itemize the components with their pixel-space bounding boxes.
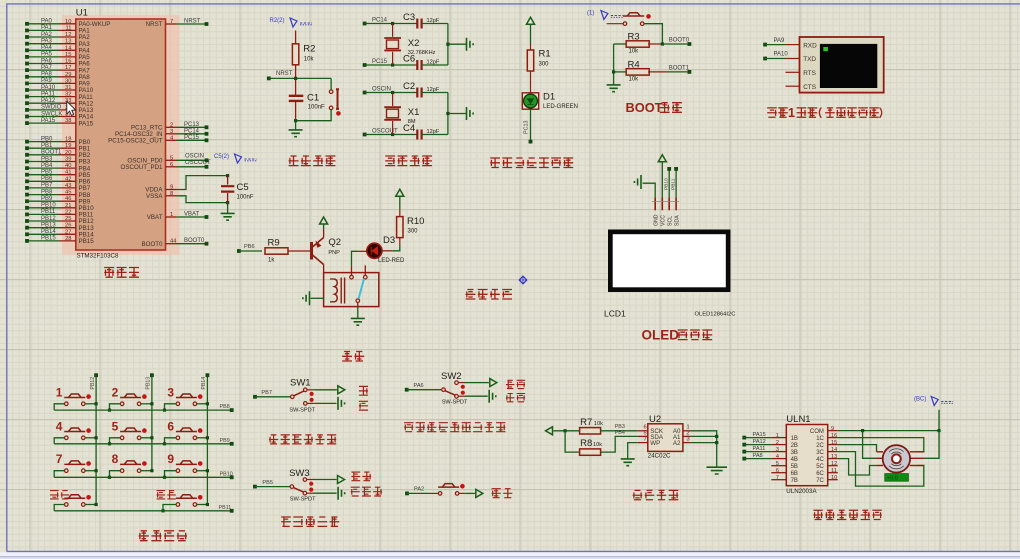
svg-text:39: 39 bbox=[65, 157, 71, 163]
svg-text:8: 8 bbox=[112, 452, 119, 466]
svg-text:1: 1 bbox=[788, 106, 795, 120]
svg-text:7C: 7C bbox=[816, 478, 824, 484]
svg-text:PA0: PA0 bbox=[41, 19, 53, 25]
svg-text:BOOT0: BOOT0 bbox=[669, 38, 690, 44]
svg-text:PA12: PA12 bbox=[753, 439, 766, 445]
svg-text:PB3: PB3 bbox=[41, 156, 53, 162]
svg-text:A2: A2 bbox=[673, 440, 681, 447]
svg-text:10k: 10k bbox=[629, 77, 640, 83]
svg-text:R4: R4 bbox=[628, 60, 640, 71]
svg-text:20: 20 bbox=[65, 150, 71, 156]
svg-text:10: 10 bbox=[65, 19, 71, 25]
svg-text:PB12: PB12 bbox=[41, 216, 56, 222]
svg-text:WP: WP bbox=[650, 440, 660, 447]
svg-text:PA2: PA2 bbox=[414, 487, 424, 493]
svg-text:40: 40 bbox=[65, 163, 71, 169]
svg-text:C2: C2 bbox=[403, 81, 415, 92]
svg-text:43: 43 bbox=[65, 183, 71, 189]
svg-text:VCC: VCC bbox=[661, 215, 667, 226]
svg-text:D3: D3 bbox=[383, 235, 395, 246]
svg-text:17: 17 bbox=[65, 65, 71, 71]
svg-text:46: 46 bbox=[65, 196, 71, 202]
svg-text:TXD: TXD bbox=[803, 56, 816, 63]
svg-text:+0.0: +0.0 bbox=[887, 476, 898, 482]
svg-text:PA4: PA4 bbox=[41, 45, 53, 51]
svg-text:7: 7 bbox=[776, 475, 779, 481]
svg-text:14: 14 bbox=[831, 447, 837, 453]
svg-text:PA6: PA6 bbox=[414, 383, 424, 389]
svg-text:SW1: SW1 bbox=[290, 377, 311, 388]
svg-text:PB10: PB10 bbox=[220, 471, 233, 477]
svg-text:PA8: PA8 bbox=[41, 72, 53, 78]
svg-text:3B: 3B bbox=[791, 450, 798, 456]
svg-text:1k: 1k bbox=[268, 258, 275, 264]
svg-text:19: 19 bbox=[65, 143, 71, 149]
svg-text:PA15: PA15 bbox=[41, 118, 56, 124]
svg-text:PB9: PB9 bbox=[41, 196, 53, 202]
svg-text:PA6: PA6 bbox=[41, 58, 53, 64]
svg-text:BOOT: BOOT bbox=[626, 100, 663, 115]
svg-text:PA1: PA1 bbox=[41, 25, 53, 31]
svg-text:VBAT: VBAT bbox=[147, 214, 163, 221]
svg-text:PB9: PB9 bbox=[220, 438, 230, 444]
svg-text:10k: 10k bbox=[304, 57, 315, 63]
svg-text:U2: U2 bbox=[649, 414, 661, 425]
svg-text:PA9: PA9 bbox=[774, 38, 786, 44]
svg-text:X1: X1 bbox=[408, 107, 420, 118]
svg-text:RXD: RXD bbox=[803, 42, 817, 49]
svg-text:PB13: PB13 bbox=[41, 223, 56, 229]
svg-text:(1): (1) bbox=[587, 11, 594, 17]
svg-text:28: 28 bbox=[65, 236, 71, 242]
svg-text:26: 26 bbox=[65, 223, 71, 229]
svg-text:3: 3 bbox=[687, 437, 690, 443]
svg-text:12: 12 bbox=[831, 461, 837, 467]
svg-text:X2: X2 bbox=[408, 38, 420, 49]
svg-text:PA11: PA11 bbox=[41, 91, 55, 97]
svg-text:12pF: 12pF bbox=[427, 87, 440, 93]
svg-text:BOOT1: BOOT1 bbox=[669, 65, 690, 71]
svg-text:SW-SPDT: SW-SPDT bbox=[442, 399, 468, 405]
svg-text:PA3: PA3 bbox=[41, 39, 53, 45]
svg-text:PB8: PB8 bbox=[220, 404, 230, 410]
svg-text:PB13: PB13 bbox=[146, 377, 152, 390]
svg-text:10k: 10k bbox=[629, 49, 640, 55]
svg-text:PB6: PB6 bbox=[41, 176, 53, 182]
svg-text:4C: 4C bbox=[816, 457, 824, 463]
svg-text:OSCIN: OSCIN bbox=[185, 154, 204, 160]
svg-text:OSCOUT: OSCOUT bbox=[185, 160, 211, 166]
svg-text:SWCLK: SWCLK bbox=[41, 111, 62, 117]
svg-text:PB1: PB1 bbox=[41, 143, 53, 149]
svg-text:SW-SPDT: SW-SPDT bbox=[290, 496, 316, 502]
svg-text:4: 4 bbox=[776, 454, 779, 460]
svg-text:45: 45 bbox=[65, 190, 71, 196]
svg-text:6: 6 bbox=[776, 468, 779, 474]
svg-text:10: 10 bbox=[831, 475, 837, 481]
svg-text:PA2: PA2 bbox=[41, 32, 53, 38]
svg-text:PC15: PC15 bbox=[372, 59, 388, 65]
svg-text:PB11: PB11 bbox=[219, 505, 232, 511]
svg-text:NRST: NRST bbox=[184, 19, 201, 25]
svg-text:30: 30 bbox=[65, 78, 71, 84]
svg-text:PA15: PA15 bbox=[753, 432, 766, 438]
svg-text:PA8: PA8 bbox=[753, 453, 763, 459]
svg-text:VSSA: VSSA bbox=[146, 193, 163, 200]
svg-text:7B: 7B bbox=[791, 478, 798, 484]
svg-text:R10: R10 bbox=[407, 216, 424, 227]
svg-text:PB6: PB6 bbox=[244, 244, 255, 250]
svg-text:1: 1 bbox=[776, 433, 779, 439]
svg-text:32: 32 bbox=[65, 92, 71, 98]
svg-text:5C: 5C bbox=[816, 464, 824, 470]
svg-text:14: 14 bbox=[65, 45, 72, 51]
svg-text:5: 5 bbox=[776, 461, 779, 467]
svg-text:PC15-OSC32_OUT: PC15-OSC32_OUT bbox=[108, 138, 163, 145]
svg-text:ULN2003A: ULN2003A bbox=[786, 488, 817, 495]
svg-text:PB5: PB5 bbox=[41, 170, 53, 176]
svg-text:12pF: 12pF bbox=[427, 129, 440, 135]
svg-text:5: 5 bbox=[112, 419, 119, 433]
svg-text:PA10: PA10 bbox=[774, 52, 789, 58]
svg-text:3C: 3C bbox=[816, 450, 824, 456]
svg-text:C5: C5 bbox=[237, 182, 249, 193]
svg-text:R1: R1 bbox=[539, 49, 551, 60]
svg-text:C1: C1 bbox=[307, 92, 319, 103]
svg-text:U1: U1 bbox=[76, 8, 88, 19]
svg-text:R7: R7 bbox=[580, 417, 592, 428]
svg-text:PB7: PB7 bbox=[41, 183, 53, 189]
svg-text:PA12: PA12 bbox=[41, 98, 56, 104]
svg-text:22: 22 bbox=[65, 209, 71, 215]
svg-text:COM: COM bbox=[810, 429, 824, 435]
svg-text:PB10: PB10 bbox=[41, 203, 56, 209]
svg-text:1B: 1B bbox=[791, 436, 798, 442]
svg-text:PA10: PA10 bbox=[41, 85, 56, 91]
svg-text:OSCOUT_PD1: OSCOUT_PD1 bbox=[121, 164, 164, 171]
svg-text:OLED: OLED bbox=[642, 328, 680, 343]
svg-text:4: 4 bbox=[56, 419, 63, 433]
svg-text:CTS: CTS bbox=[803, 84, 816, 91]
svg-text:R8: R8 bbox=[580, 438, 592, 449]
svg-text:PB11: PB11 bbox=[671, 178, 677, 190]
svg-text:PC14: PC14 bbox=[184, 128, 200, 134]
svg-text:LED-RED: LED-RED bbox=[378, 258, 405, 264]
svg-text:24C02C: 24C02C bbox=[648, 453, 671, 460]
svg-text:SW3: SW3 bbox=[289, 468, 310, 479]
svg-text:32.768KHz: 32.768KHz bbox=[408, 50, 436, 56]
svg-text:38: 38 bbox=[65, 118, 71, 124]
svg-text:D1: D1 bbox=[543, 92, 555, 103]
svg-text:11: 11 bbox=[831, 468, 837, 474]
svg-text:9: 9 bbox=[831, 426, 834, 432]
svg-text:2B: 2B bbox=[791, 443, 798, 449]
svg-text:PB15: PB15 bbox=[79, 238, 95, 245]
svg-text:PB5: PB5 bbox=[262, 480, 273, 486]
svg-text:R2: R2 bbox=[303, 44, 315, 55]
svg-text:LED-GREEN: LED-GREEN bbox=[543, 104, 578, 110]
svg-text:3: 3 bbox=[167, 385, 174, 399]
svg-text:SW-SPDT: SW-SPDT bbox=[289, 408, 315, 414]
svg-text:PNP: PNP bbox=[328, 250, 340, 256]
svg-text:Q2: Q2 bbox=[328, 237, 341, 248]
svg-text:PC13: PC13 bbox=[523, 121, 529, 135]
svg-text:25: 25 bbox=[65, 216, 71, 222]
svg-text:PB12: PB12 bbox=[90, 377, 96, 390]
svg-text:PB15: PB15 bbox=[41, 236, 56, 242]
svg-text:18: 18 bbox=[65, 137, 71, 143]
svg-text:1C: 1C bbox=[816, 436, 824, 442]
svg-text:16: 16 bbox=[65, 59, 71, 65]
svg-text:3: 3 bbox=[776, 447, 779, 453]
svg-text:6C: 6C bbox=[816, 471, 824, 477]
svg-text:9: 9 bbox=[167, 452, 174, 466]
svg-text:10k: 10k bbox=[594, 421, 603, 427]
svg-text:NRST: NRST bbox=[146, 21, 163, 28]
svg-text:PB0: PB0 bbox=[41, 136, 53, 142]
svg-text:41: 41 bbox=[65, 170, 71, 176]
svg-text:PA15: PA15 bbox=[79, 120, 94, 127]
svg-text:16: 16 bbox=[831, 433, 837, 439]
svg-text:100nF: 100nF bbox=[308, 105, 325, 111]
svg-text:R2(2): R2(2) bbox=[270, 18, 285, 24]
svg-text:27: 27 bbox=[65, 229, 71, 235]
svg-text:PA9: PA9 bbox=[41, 78, 53, 84]
svg-text:13: 13 bbox=[65, 39, 71, 45]
svg-text:2: 2 bbox=[776, 440, 779, 446]
svg-text:C5(2): C5(2) bbox=[214, 154, 229, 160]
svg-text:NRST: NRST bbox=[276, 71, 293, 77]
svg-text:13: 13 bbox=[831, 454, 837, 460]
svg-text:PC15: PC15 bbox=[184, 135, 200, 141]
svg-text:6B: 6B bbox=[791, 471, 798, 477]
svg-text:12: 12 bbox=[65, 32, 71, 38]
svg-text:BOOT0: BOOT0 bbox=[184, 238, 205, 244]
svg-text:OSCIN: OSCIN bbox=[372, 87, 391, 93]
svg-text:2C: 2C bbox=[816, 443, 824, 449]
svg-text:LCD1: LCD1 bbox=[604, 309, 626, 319]
svg-text:R3: R3 bbox=[628, 32, 640, 43]
svg-text:15: 15 bbox=[65, 52, 71, 58]
svg-text:BOOT1: BOOT1 bbox=[41, 150, 62, 156]
svg-text:PB14: PB14 bbox=[201, 377, 207, 390]
svg-text:GND: GND bbox=[653, 214, 659, 226]
svg-text:SWDIO: SWDIO bbox=[41, 105, 62, 111]
svg-text:ULN1: ULN1 bbox=[786, 414, 810, 425]
svg-text:5B: 5B bbox=[791, 464, 798, 470]
svg-text:12pF: 12pF bbox=[427, 60, 440, 66]
svg-text:PB14: PB14 bbox=[41, 229, 56, 235]
svg-text:PA5: PA5 bbox=[41, 52, 53, 58]
svg-text:12pF: 12pF bbox=[427, 18, 440, 24]
svg-text:PB11: PB11 bbox=[41, 209, 56, 215]
svg-text:1: 1 bbox=[56, 385, 63, 399]
svg-text:2: 2 bbox=[112, 385, 119, 399]
svg-text:PB10: PB10 bbox=[664, 178, 670, 190]
svg-text:PB7: PB7 bbox=[261, 390, 272, 396]
svg-text:SW2: SW2 bbox=[441, 371, 462, 382]
svg-text:BOOT0: BOOT0 bbox=[142, 241, 164, 248]
svg-text:29: 29 bbox=[65, 72, 71, 78]
svg-text:7: 7 bbox=[56, 452, 63, 466]
svg-text:15: 15 bbox=[831, 440, 837, 446]
svg-text:8M: 8M bbox=[408, 119, 416, 125]
svg-text:100nF: 100nF bbox=[237, 195, 254, 201]
svg-text:6: 6 bbox=[167, 419, 174, 433]
svg-text:SCL: SCL bbox=[667, 216, 673, 226]
svg-text:PB8: PB8 bbox=[41, 189, 53, 195]
svg-text:10k: 10k bbox=[593, 442, 602, 448]
svg-text:PA11: PA11 bbox=[753, 446, 766, 452]
svg-text:STM32F103C8: STM32F103C8 bbox=[77, 253, 120, 260]
svg-text:42: 42 bbox=[65, 176, 71, 182]
svg-text:PC14: PC14 bbox=[372, 18, 388, 24]
svg-text:PB4: PB4 bbox=[41, 163, 53, 169]
svg-text:SDA: SDA bbox=[674, 215, 680, 226]
svg-text:PC13: PC13 bbox=[184, 122, 200, 128]
svg-text:300: 300 bbox=[408, 229, 419, 235]
svg-text:RTS: RTS bbox=[803, 70, 816, 77]
svg-text:VBAT: VBAT bbox=[184, 212, 200, 218]
svg-text:OLED12864I2C: OLED12864I2C bbox=[695, 312, 736, 318]
svg-text:300: 300 bbox=[539, 62, 550, 68]
svg-text:PA7: PA7 bbox=[41, 65, 53, 71]
svg-text:31: 31 bbox=[65, 85, 71, 91]
svg-text:PB4: PB4 bbox=[615, 430, 625, 436]
svg-text:21: 21 bbox=[65, 203, 71, 209]
svg-text:C3: C3 bbox=[403, 12, 415, 23]
svg-text:R9: R9 bbox=[268, 238, 280, 249]
svg-text:7: 7 bbox=[644, 437, 647, 443]
svg-text:4B: 4B bbox=[791, 457, 798, 463]
svg-text:11: 11 bbox=[65, 25, 71, 31]
svg-text:(BC): (BC) bbox=[914, 397, 926, 403]
